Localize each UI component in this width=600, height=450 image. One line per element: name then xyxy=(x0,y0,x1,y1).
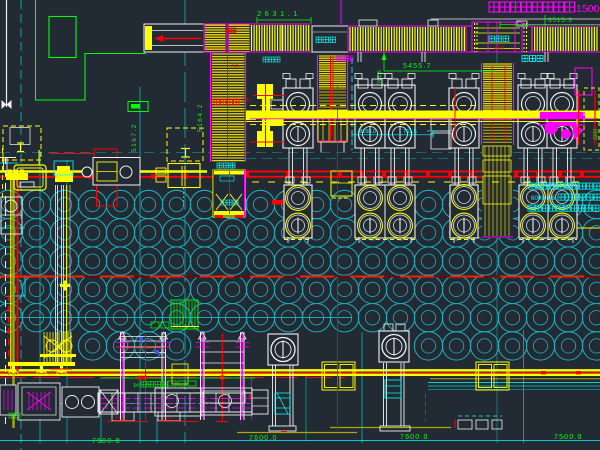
svg-text:R2.5: R2.5 xyxy=(115,415,124,420)
svg-text:2631.1: 2631.1 xyxy=(257,9,301,18)
svg-text:7600.0: 7600.0 xyxy=(249,435,278,442)
svg-text:761.5: 761.5 xyxy=(403,129,417,135)
svg-text:7600.0: 7600.0 xyxy=(400,434,429,441)
svg-text:6000 l=6: 6000 l=6 xyxy=(531,195,555,202)
svg-text:5167.2: 5167.2 xyxy=(131,123,138,152)
svg-text:3515.3: 3515.3 xyxy=(548,17,573,24)
svg-text:7500.0: 7500.0 xyxy=(92,438,121,445)
svg-text:Ø165.0: Ø165.0 xyxy=(358,129,376,135)
svg-text:2000: 2000 xyxy=(494,45,505,50)
svg-text:5455.7: 5455.7 xyxy=(403,63,432,70)
svg-text:7.5t: 7.5t xyxy=(231,63,239,68)
svg-text:170A: 170A xyxy=(241,97,251,102)
svg-text:1#: 1# xyxy=(133,383,140,389)
svg-text:7500.0: 7500.0 xyxy=(554,434,583,441)
svg-text:3200: 3200 xyxy=(593,129,599,140)
svg-text:R2.5: R2.5 xyxy=(163,415,172,420)
svg-text:1500mm: 1500mm xyxy=(576,3,600,15)
